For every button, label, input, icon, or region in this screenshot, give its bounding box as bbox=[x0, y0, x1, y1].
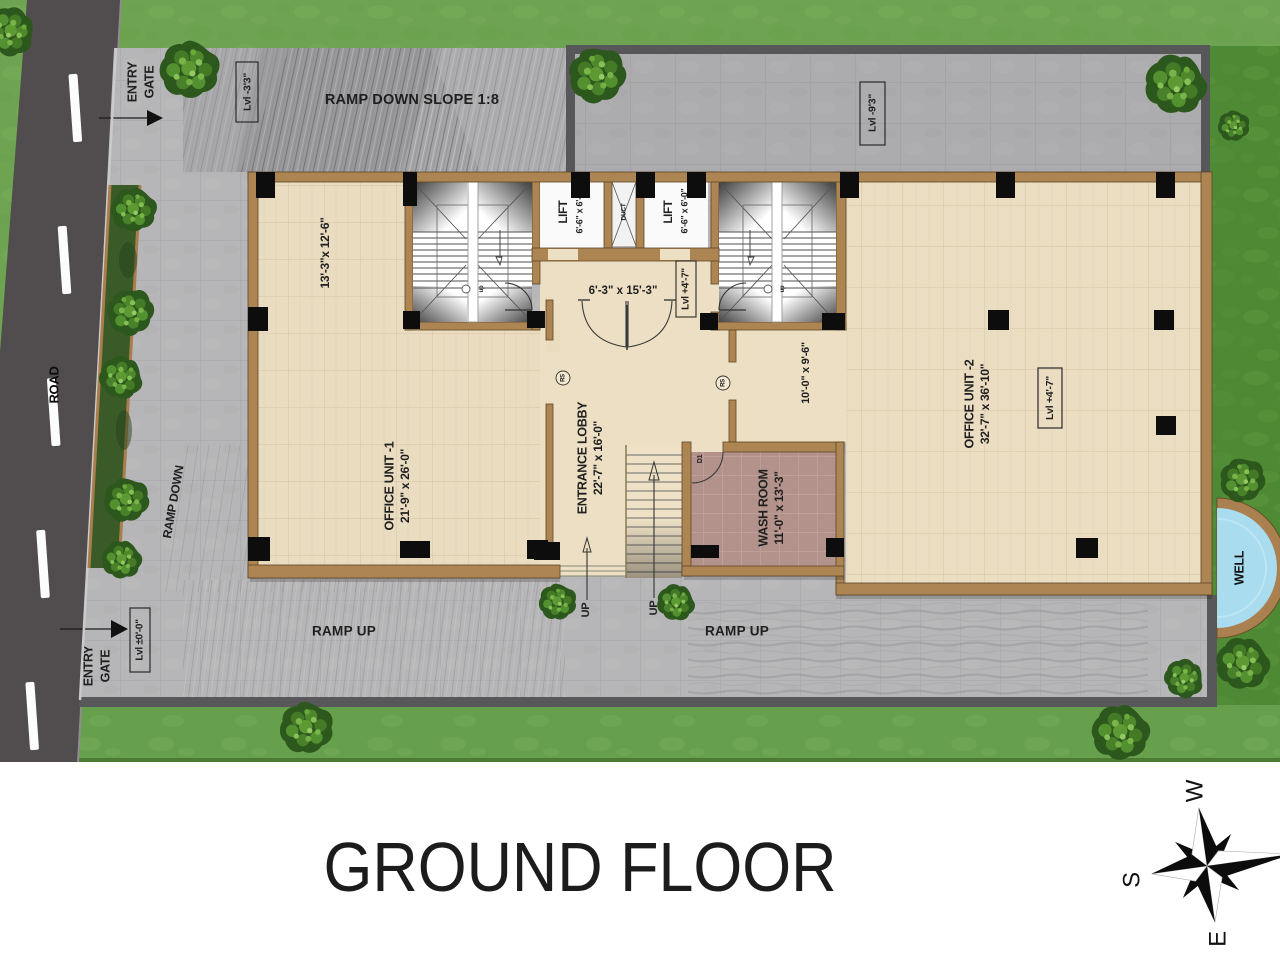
svg-text:11'-0" x 13'-3": 11'-0" x 13'-3" bbox=[772, 471, 786, 544]
svg-text:RAMP UP: RAMP UP bbox=[312, 624, 376, 639]
svg-text:up: up bbox=[479, 285, 485, 292]
svg-text:OFFICE UNIT -2: OFFICE UNIT -2 bbox=[962, 359, 976, 448]
svg-text:ENTRANCE LOBBY: ENTRANCE LOBBY bbox=[575, 401, 589, 514]
svg-text:Lvl ±0'-0": Lvl ±0'-0" bbox=[135, 619, 146, 661]
svg-text:21'-9" x 26'-0": 21'-9" x 26'-0" bbox=[398, 449, 412, 523]
svg-text:Lvl +4'-7": Lvl +4'-7" bbox=[1044, 376, 1056, 420]
svg-text:D1: D1 bbox=[697, 454, 704, 463]
svg-text:E: E bbox=[1204, 931, 1231, 947]
svg-text:RS: RS bbox=[561, 374, 567, 382]
svg-text:6'-3" x 15'-3": 6'-3" x 15'-3" bbox=[589, 285, 658, 297]
svg-text:WELL: WELL bbox=[1232, 550, 1246, 585]
svg-text:32'-7" x 36'-10": 32'-7" x 36'-10" bbox=[978, 364, 992, 444]
svg-text:13'-3"x 12'-6": 13'-3"x 12'-6" bbox=[318, 218, 332, 289]
svg-text:RAMP DOWN SLOPE 1:8: RAMP DOWN SLOPE 1:8 bbox=[325, 92, 499, 108]
svg-text:Lvl +4'-7": Lvl +4'-7" bbox=[681, 268, 692, 310]
svg-text:Lvl -9'3": Lvl -9'3" bbox=[866, 94, 878, 132]
svg-text:LIFT: LIFT bbox=[663, 200, 675, 223]
svg-text:WASH ROOM: WASH ROOM bbox=[756, 469, 770, 546]
svg-text:Lvl -3'3": Lvl -3'3" bbox=[241, 73, 253, 111]
svg-text:LIFT: LIFT bbox=[558, 200, 570, 223]
svg-text:S: S bbox=[1118, 872, 1145, 888]
svg-text:RS: RS bbox=[721, 379, 727, 387]
svg-text:GATE: GATE bbox=[98, 650, 112, 683]
svg-text:UP: UP bbox=[580, 603, 592, 618]
svg-text:22'-7" x 16'-0": 22'-7" x 16'-0" bbox=[591, 421, 605, 495]
svg-text:up: up bbox=[780, 285, 786, 292]
svg-text:ENTRY: ENTRY bbox=[125, 61, 139, 102]
svg-text:GATE: GATE bbox=[142, 66, 156, 99]
svg-text:10'-0" x 9'-6": 10'-0" x 9'-6" bbox=[800, 342, 812, 404]
svg-text:GROUND FLOOR: GROUND FLOOR bbox=[324, 828, 837, 906]
svg-text:W: W bbox=[1181, 779, 1208, 802]
svg-text:RAMP UP: RAMP UP bbox=[705, 624, 769, 639]
svg-text:DUCT: DUCT bbox=[621, 203, 628, 220]
svg-text:ROAD: ROAD bbox=[46, 366, 61, 403]
svg-text:OFFICE UNIT -1: OFFICE UNIT -1 bbox=[382, 441, 396, 530]
